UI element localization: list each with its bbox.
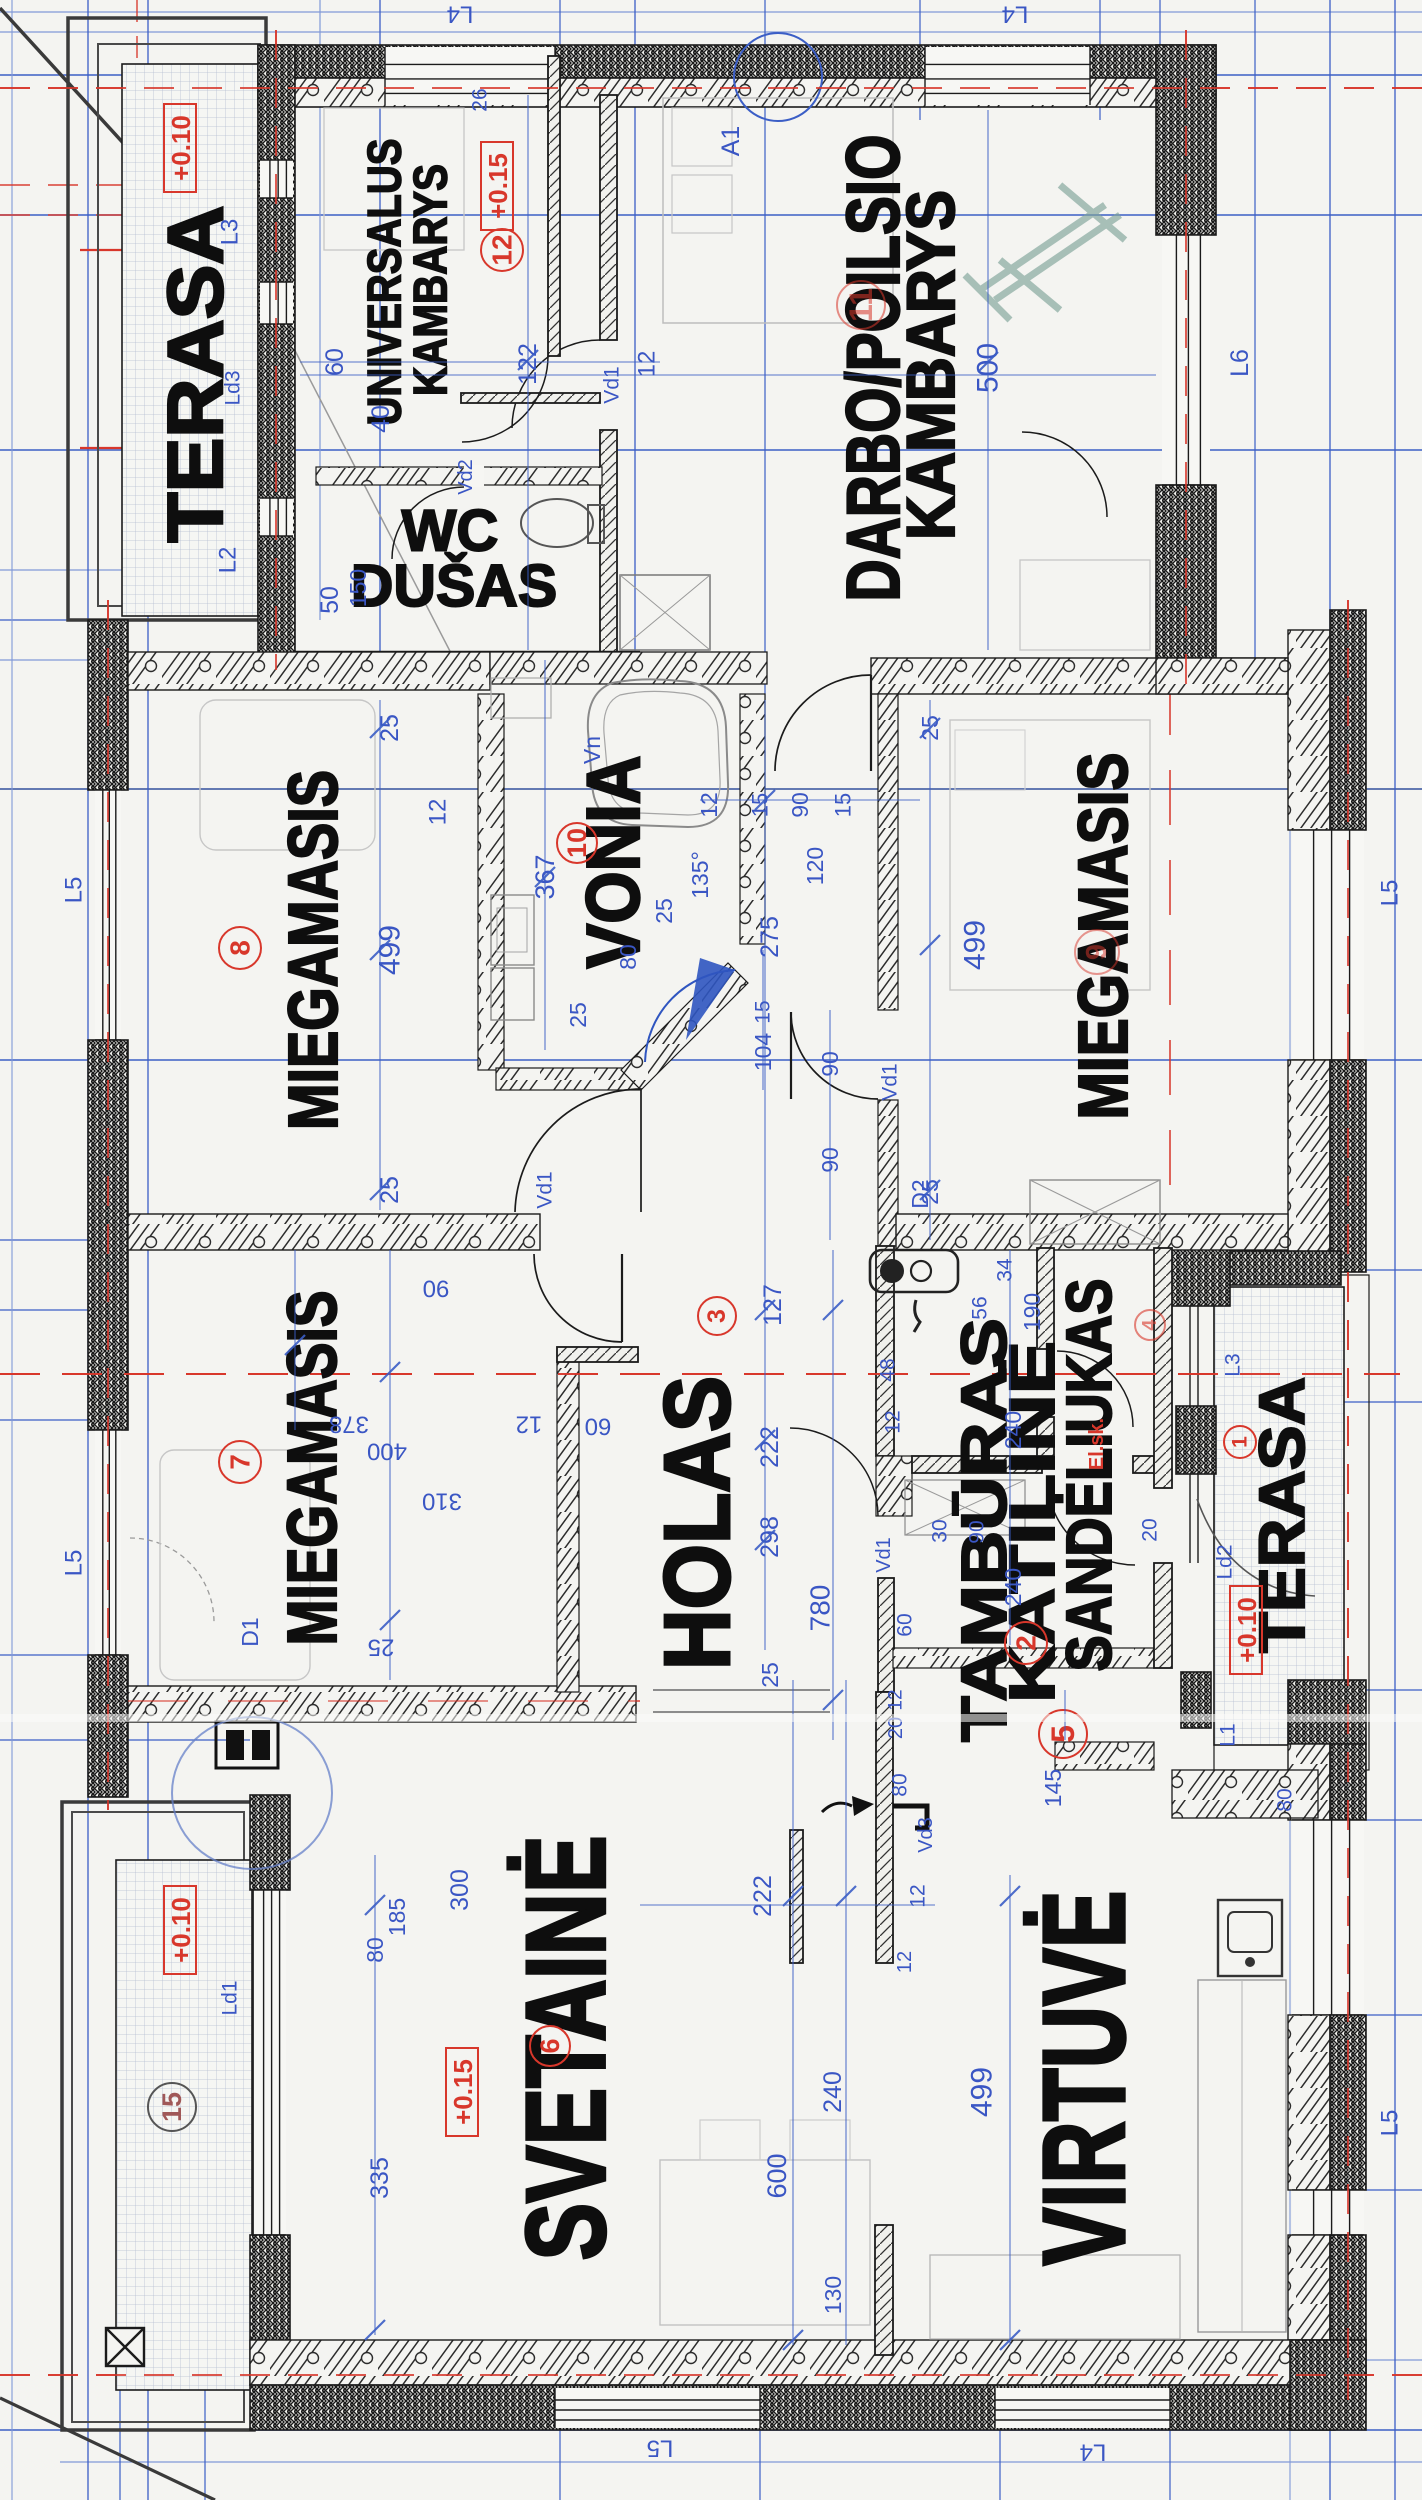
svg-text:L4: L4 [1080, 2439, 1107, 2466]
svg-text:222: 222 [749, 1875, 777, 1917]
svg-text:Vn: Vn [579, 736, 605, 764]
svg-text:298: 298 [756, 1516, 784, 1558]
svg-text:L5: L5 [1377, 880, 1404, 907]
svg-text:240: 240 [819, 2071, 847, 2113]
svg-text:Vd1: Vd1 [879, 1063, 902, 1100]
svg-text:12: 12 [882, 1410, 905, 1433]
svg-text:12: 12 [886, 1689, 907, 1710]
svg-text:240: 240 [1000, 1568, 1026, 1606]
svg-text:25: 25 [651, 898, 677, 924]
svg-text:80: 80 [615, 944, 641, 970]
svg-text:12: 12 [516, 1411, 543, 1438]
svg-text:25: 25 [757, 1662, 783, 1688]
svg-text:+0.15: +0.15 [483, 153, 513, 219]
svg-text:HOLAS: HOLAS [645, 1376, 749, 1670]
svg-text:275: 275 [756, 916, 784, 958]
svg-text:400: 400 [367, 1438, 407, 1465]
svg-text:L5: L5 [61, 877, 88, 904]
svg-text:VIRTUVĖ: VIRTUVĖ [1019, 1891, 1149, 2266]
svg-text:499: 499 [966, 2067, 999, 2117]
svg-text:SVETAINĖ: SVETAINĖ [504, 1836, 629, 2261]
svg-text:L4: L4 [1002, 1, 1029, 28]
svg-text:A1: A1 [717, 126, 745, 157]
svg-text:SANDĖLIUKAS: SANDĖLIUKAS [1053, 1279, 1125, 1672]
svg-text:6: 6 [535, 2038, 565, 2053]
svg-text:7: 7 [225, 1454, 256, 1470]
svg-text:90: 90 [787, 792, 813, 818]
svg-text:600: 600 [762, 2153, 792, 2198]
svg-text:130: 130 [820, 2276, 846, 2314]
svg-text:90: 90 [423, 1275, 450, 1302]
svg-text:L5: L5 [1377, 2110, 1404, 2137]
svg-text:L5: L5 [61, 1550, 88, 1577]
svg-text:11: 11 [843, 288, 879, 322]
svg-text:+0.10: +0.10 [166, 115, 196, 181]
svg-text:2: 2 [1011, 1635, 1042, 1651]
svg-text:L6: L6 [1226, 349, 1254, 377]
svg-text:12: 12 [894, 1951, 916, 1973]
svg-text:8: 8 [225, 940, 256, 956]
svg-text:+0.10: +0.10 [166, 1897, 196, 1963]
svg-text:+0.10: +0.10 [1232, 1597, 1262, 1663]
svg-text:El.sk.: El.sk. [1086, 1418, 1108, 1470]
svg-text:MIEGAMASIS: MIEGAMASIS [1064, 753, 1142, 1120]
svg-text:+0.15: +0.15 [448, 2059, 478, 2125]
svg-text:D1: D1 [237, 1617, 263, 1646]
svg-text:222: 222 [756, 1426, 784, 1468]
svg-text:12: 12 [425, 799, 452, 826]
svg-text:L4: L4 [447, 1, 474, 28]
svg-text:50: 50 [316, 586, 344, 614]
svg-text:KAMBARYS: KAMBARYS [893, 190, 969, 540]
svg-text:150: 150 [345, 569, 371, 607]
svg-text:185: 185 [384, 1898, 410, 1936]
svg-text:4: 4 [1139, 1319, 1161, 1331]
svg-text:5: 5 [1045, 1725, 1081, 1743]
svg-text:26: 26 [469, 88, 492, 111]
svg-text:25: 25 [565, 1002, 591, 1028]
svg-text:1: 1 [1229, 1436, 1252, 1448]
svg-text:9: 9 [1081, 944, 1113, 960]
svg-text:MIEGAMASIS: MIEGAMASIS [273, 1291, 351, 1646]
svg-text:240: 240 [1000, 1411, 1026, 1449]
svg-text:80: 80 [1274, 1788, 1297, 1811]
svg-text:90: 90 [966, 1520, 989, 1543]
svg-text:15: 15 [157, 2092, 187, 2122]
svg-text:KAMBARYS: KAMBARYS [404, 164, 457, 396]
svg-text:Vd1: Vd1 [534, 1171, 557, 1208]
svg-text:145: 145 [1040, 1769, 1066, 1807]
svg-text:L3: L3 [1222, 1353, 1245, 1376]
svg-text:L5: L5 [647, 2435, 674, 2462]
svg-text:Vd1: Vd1 [601, 366, 624, 403]
svg-text:30: 30 [929, 1519, 952, 1542]
svg-text:190: 190 [1019, 1293, 1045, 1331]
svg-text:3: 3 [703, 1309, 731, 1323]
svg-text:Ld1: Ld1 [219, 1980, 242, 2015]
svg-text:12: 12 [487, 234, 518, 265]
svg-text:DUŠAS: DUŠAS [351, 552, 558, 619]
svg-text:Vd1: Vd1 [873, 1537, 895, 1573]
svg-text:335: 335 [366, 2157, 394, 2199]
svg-text:56: 56 [969, 1296, 992, 1319]
svg-text:60: 60 [585, 1413, 612, 1440]
svg-text:127: 127 [759, 1284, 787, 1326]
svg-text:Vd2: Vd2 [455, 459, 477, 495]
svg-text:300: 300 [446, 1869, 474, 1911]
svg-text:15: 15 [831, 793, 856, 817]
svg-text:10: 10 [562, 828, 592, 858]
svg-text:MIEGAMASIS: MIEGAMASIS [274, 770, 352, 1130]
svg-text:Ld2: Ld2 [1214, 1544, 1237, 1579]
svg-text:135°: 135° [687, 851, 713, 899]
svg-text:48: 48 [877, 1358, 900, 1381]
svg-text:12: 12 [696, 792, 722, 818]
svg-text:Vd3: Vd3 [915, 1817, 937, 1853]
svg-text:120: 120 [802, 847, 828, 885]
svg-text:60: 60 [894, 1613, 917, 1636]
svg-text:Ld3: Ld3 [222, 370, 245, 405]
svg-text:L3: L3 [217, 219, 244, 246]
svg-text:L1: L1 [1217, 1723, 1240, 1746]
svg-text:L2: L2 [215, 547, 242, 574]
svg-text:310: 310 [422, 1488, 462, 1515]
svg-text:780: 780 [805, 1585, 836, 1632]
svg-text:378: 378 [329, 1411, 369, 1438]
svg-text:80: 80 [889, 1773, 912, 1796]
svg-text:40: 40 [367, 405, 395, 433]
svg-text:12: 12 [634, 351, 661, 378]
svg-text:20: 20 [1139, 1518, 1162, 1541]
svg-text:34: 34 [994, 1258, 1017, 1282]
svg-text:12: 12 [907, 1884, 930, 1907]
svg-text:499: 499 [959, 920, 992, 970]
